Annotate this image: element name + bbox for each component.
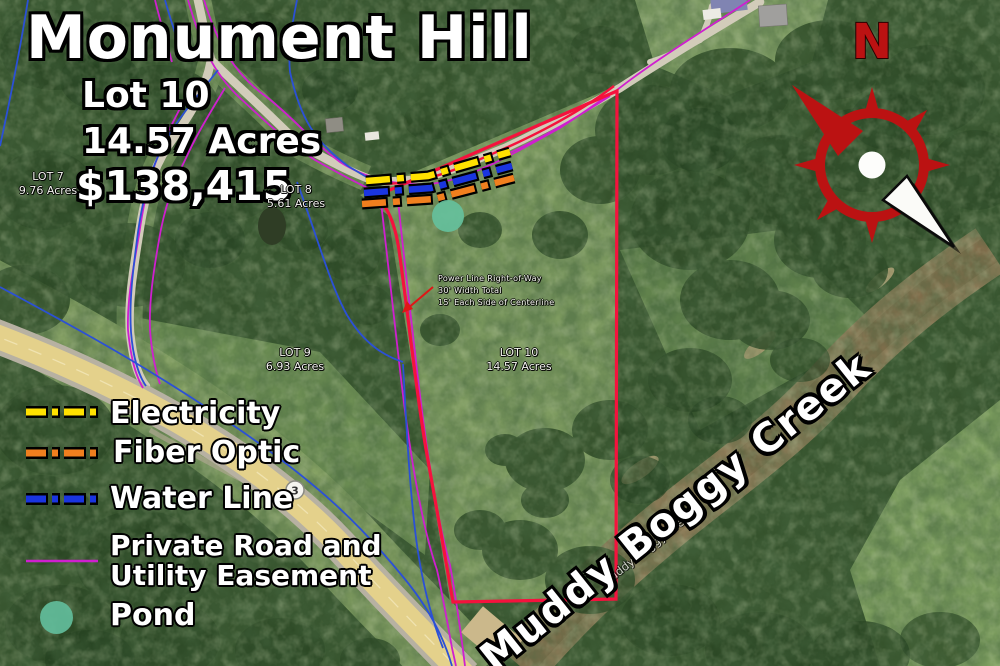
private-road-easement-swatch [24,557,100,565]
lot10-label: LOT 10 14.57 Acres [486,346,551,375]
compass-rose: N [757,18,987,268]
listing-map-poster: 3 N Monument Hill Lot 10 14.57 Acres $13… [0,0,1000,666]
legend-label-fiber-optic: Fiber Optic [113,437,300,469]
lot-number-label: Lot 10 [82,78,210,114]
price-label: $138,415 [76,166,291,207]
small-dark-pond [258,207,286,245]
fiber-optic-line-swatch [24,446,100,460]
lot9-acres: 6.93 Acres [266,360,324,373]
power-line-annotation: Power Line Right-of-Way 30' Width Total … [438,273,554,309]
poster-title: Monument Hill [26,8,533,68]
legend-label-water-line: Water Line [110,483,293,515]
electricity-line-swatch [24,405,100,419]
lot9-label: LOT 9 6.93 Acres [266,346,324,375]
lot7-label: LOT 7 9.76 Acres [19,170,77,199]
legend-label-pond: Pond [110,600,195,632]
lot7-name: LOT 7 [32,170,64,183]
compass-north-label: N [852,18,892,70]
lot8-name: LOT 8 [280,183,312,196]
legend-label-electricity: Electricity [110,398,280,430]
water-line-swatch [24,492,100,506]
lot9-name: LOT 9 [279,346,311,359]
lot10-name: LOT 10 [500,346,539,359]
lot10-acres: 14.57 Acres [486,360,551,373]
pond-marker [432,200,464,232]
pond-swatch [40,601,73,634]
lot7-acres: 9.76 Acres [19,184,77,197]
compass-center-dot [859,152,886,179]
legend-label-private-road: Private Road and Utility Easement [110,531,382,591]
lot8-label: LOT 8 5.61 Acres [267,183,325,212]
lot8-acres: 5.61 Acres [267,197,325,210]
acreage-label: 14.57 Acres [82,124,321,160]
